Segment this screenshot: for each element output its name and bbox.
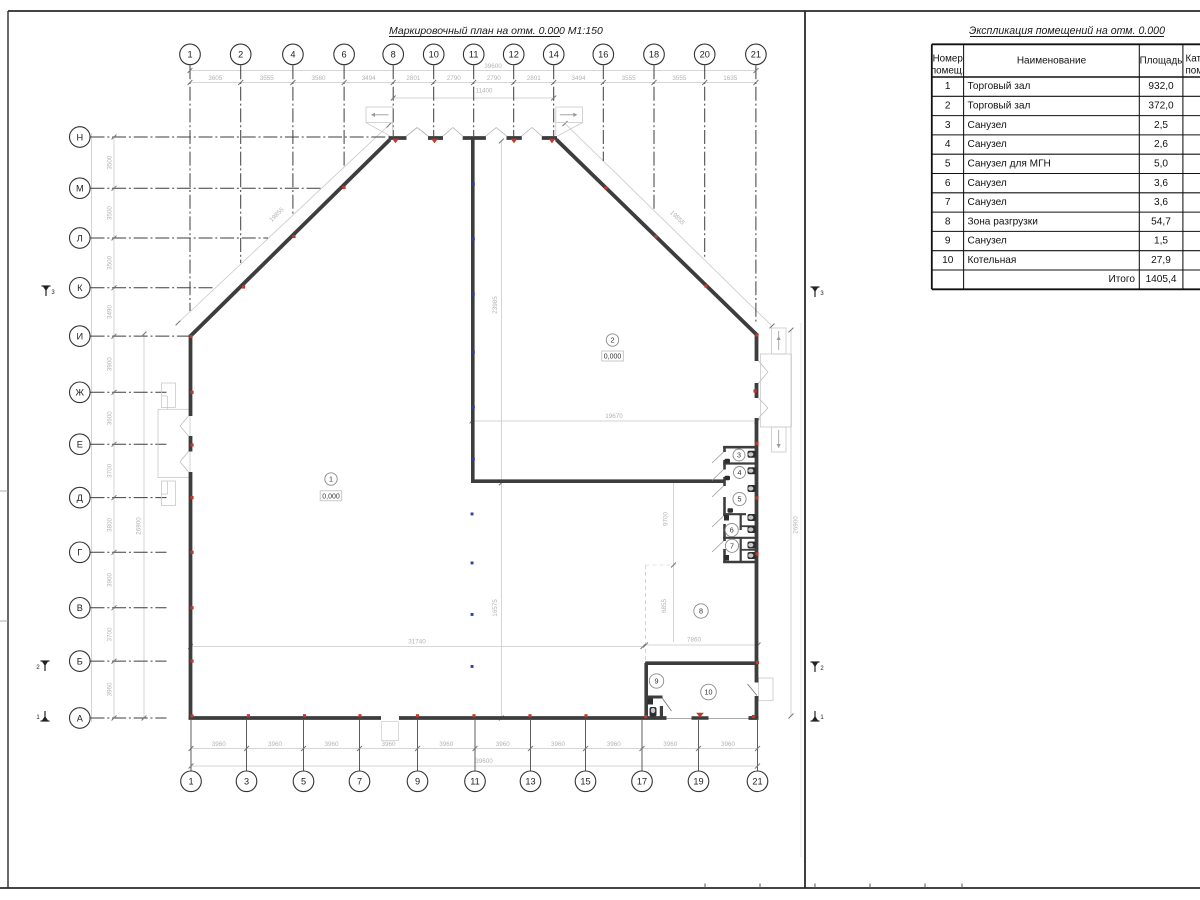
svg-text:23985: 23985 — [492, 296, 499, 314]
svg-text:1: 1 — [945, 81, 951, 92]
svg-text:8: 8 — [391, 50, 396, 60]
svg-text:2790: 2790 — [447, 75, 462, 82]
svg-text:Кат.: Кат. — [1186, 54, 1200, 65]
svg-text:3600: 3600 — [107, 411, 114, 426]
svg-text:1,5: 1,5 — [1154, 236, 1168, 247]
svg-text:Санузел: Санузел — [968, 197, 1007, 208]
svg-text:В: В — [77, 603, 83, 613]
svg-text:9: 9 — [945, 236, 951, 247]
svg-text:3494: 3494 — [571, 75, 586, 82]
svg-text:Санузел: Санузел — [968, 178, 1007, 189]
svg-text:10: 10 — [429, 50, 439, 60]
svg-text:19670: 19670 — [605, 413, 623, 420]
svg-text:20: 20 — [700, 50, 710, 60]
svg-text:2,6: 2,6 — [1154, 139, 1168, 150]
svg-text:Н: Н — [76, 132, 83, 142]
svg-text:3960: 3960 — [663, 741, 678, 748]
svg-text:3560: 3560 — [311, 75, 326, 82]
svg-text:Б: Б — [77, 656, 83, 666]
svg-text:372,0: 372,0 — [1148, 101, 1174, 112]
svg-text:3: 3 — [737, 451, 741, 460]
svg-text:3960: 3960 — [496, 741, 511, 748]
svg-text:1635: 1635 — [723, 75, 738, 82]
svg-text:И: И — [76, 331, 83, 341]
svg-text:11: 11 — [469, 50, 479, 60]
svg-text:Торговый зал: Торговый зал — [968, 81, 1031, 92]
svg-text:8: 8 — [945, 216, 951, 227]
svg-text:3960: 3960 — [107, 682, 114, 697]
svg-text:19: 19 — [693, 777, 703, 787]
svg-text:Маркировочный план на отм. 0.0: Маркировочный план на отм. 0.000 М1:150 — [389, 25, 603, 37]
svg-text:3555: 3555 — [622, 75, 637, 82]
svg-text:3960: 3960 — [721, 741, 736, 748]
svg-text:9: 9 — [655, 677, 659, 686]
svg-text:1: 1 — [188, 777, 193, 787]
svg-text:Наименование: Наименование — [1017, 56, 1087, 67]
svg-text:5,0: 5,0 — [1154, 158, 1168, 169]
svg-text:7: 7 — [945, 197, 951, 208]
svg-text:39600: 39600 — [484, 63, 502, 70]
svg-text:16575: 16575 — [492, 599, 499, 617]
svg-text:1: 1 — [187, 50, 192, 60]
svg-text:Е: Е — [77, 440, 83, 450]
svg-text:3605: 3605 — [208, 75, 223, 82]
svg-text:М: М — [76, 184, 84, 194]
svg-text:Итого: Итого — [1109, 274, 1136, 285]
svg-text:3960: 3960 — [381, 741, 396, 748]
svg-text:3494: 3494 — [362, 75, 377, 82]
svg-text:Л: Л — [77, 233, 83, 243]
svg-text:2: 2 — [611, 336, 615, 345]
svg-text:6: 6 — [945, 178, 951, 189]
svg-text:Торговый зал: Торговый зал — [968, 101, 1031, 112]
svg-text:15: 15 — [580, 777, 590, 787]
svg-text:17: 17 — [637, 777, 647, 787]
svg-text:3555: 3555 — [260, 75, 275, 82]
svg-text:3: 3 — [945, 120, 951, 131]
svg-text:10: 10 — [942, 255, 954, 266]
svg-text:Санузел для МГН: Санузел для МГН — [968, 158, 1051, 169]
svg-text:3,6: 3,6 — [1154, 178, 1168, 189]
svg-text:2: 2 — [945, 101, 951, 112]
svg-text:13: 13 — [525, 777, 535, 787]
svg-text:4: 4 — [290, 50, 295, 60]
svg-text:6855: 6855 — [661, 599, 668, 614]
svg-text:6: 6 — [730, 526, 734, 535]
svg-text:5: 5 — [945, 158, 951, 169]
svg-text:3900: 3900 — [107, 573, 114, 588]
svg-text:3960: 3960 — [212, 741, 227, 748]
svg-text:3960: 3960 — [551, 741, 566, 748]
svg-text:Котельная: Котельная — [968, 255, 1017, 266]
svg-text:26900: 26900 — [793, 516, 800, 534]
svg-text:Зона разгрузки: Зона разгрузки — [968, 216, 1038, 227]
svg-text:7860: 7860 — [687, 637, 702, 644]
svg-text:9: 9 — [415, 777, 420, 787]
svg-text:Санузел: Санузел — [968, 120, 1007, 131]
svg-text:4: 4 — [945, 139, 951, 150]
svg-text:3960: 3960 — [268, 741, 283, 748]
svg-text:Г: Г — [77, 548, 82, 558]
svg-text:21: 21 — [752, 777, 762, 787]
svg-text:27,9: 27,9 — [1151, 255, 1171, 266]
svg-text:6: 6 — [342, 50, 347, 60]
svg-text:7: 7 — [730, 541, 734, 550]
svg-text:Санузел: Санузел — [968, 236, 1007, 247]
svg-text:3960: 3960 — [607, 741, 622, 748]
svg-text:11400: 11400 — [475, 88, 493, 95]
svg-text:21: 21 — [751, 50, 761, 60]
svg-text:3800: 3800 — [107, 518, 114, 533]
svg-text:3960: 3960 — [324, 741, 339, 748]
svg-text:5: 5 — [301, 777, 306, 787]
svg-text:пом: пом — [1186, 66, 1200, 77]
svg-text:Д: Д — [77, 493, 84, 503]
svg-text:0,000: 0,000 — [604, 354, 622, 361]
svg-text:3: 3 — [244, 777, 249, 787]
svg-text:2801: 2801 — [527, 75, 542, 82]
svg-text:7: 7 — [357, 777, 362, 787]
svg-text:8: 8 — [699, 607, 703, 616]
svg-text:Ж: Ж — [76, 388, 85, 398]
svg-text:3900: 3900 — [107, 357, 114, 372]
svg-text:3,6: 3,6 — [1154, 197, 1168, 208]
svg-text:4: 4 — [738, 468, 742, 477]
svg-text:А: А — [77, 713, 84, 723]
svg-text:31740: 31740 — [408, 639, 426, 646]
svg-text:9700: 9700 — [663, 512, 670, 527]
svg-text:12: 12 — [509, 50, 519, 60]
svg-text:2,5: 2,5 — [1154, 120, 1168, 131]
svg-text:3500: 3500 — [107, 206, 114, 221]
svg-text:Номер: Номер — [933, 54, 964, 65]
svg-text:2790: 2790 — [487, 75, 502, 82]
svg-text:18: 18 — [649, 50, 659, 60]
svg-text:3500: 3500 — [107, 155, 114, 170]
svg-text:помещ.: помещ. — [931, 66, 965, 77]
svg-text:Площадь: Площадь — [1140, 56, 1183, 67]
svg-text:1405,4: 1405,4 — [1146, 274, 1177, 285]
svg-text:16: 16 — [598, 50, 608, 60]
svg-text:3700: 3700 — [107, 463, 114, 478]
svg-text:3555: 3555 — [672, 75, 687, 82]
svg-text:932,0: 932,0 — [1148, 81, 1174, 92]
svg-text:14: 14 — [549, 50, 559, 60]
svg-text:2: 2 — [238, 50, 243, 60]
svg-text:2801: 2801 — [406, 75, 421, 82]
svg-text:3500: 3500 — [107, 255, 114, 270]
svg-text:26900: 26900 — [136, 517, 143, 535]
svg-text:К: К — [77, 283, 83, 293]
svg-text:3960: 3960 — [439, 741, 454, 748]
svg-text:54,7: 54,7 — [1151, 216, 1171, 227]
svg-text:0,000: 0,000 — [322, 493, 340, 500]
svg-text:11: 11 — [470, 777, 480, 787]
svg-text:1: 1 — [329, 475, 333, 484]
svg-text:3700: 3700 — [107, 627, 114, 642]
svg-text:39600: 39600 — [475, 758, 493, 765]
svg-text:3490: 3490 — [107, 305, 114, 320]
svg-text:5: 5 — [738, 495, 742, 504]
svg-text:10: 10 — [705, 688, 713, 697]
svg-text:Санузел: Санузел — [968, 139, 1007, 150]
svg-text:Экспликация помещений на отм.: Экспликация помещений на отм. 0.000 — [969, 25, 1165, 37]
